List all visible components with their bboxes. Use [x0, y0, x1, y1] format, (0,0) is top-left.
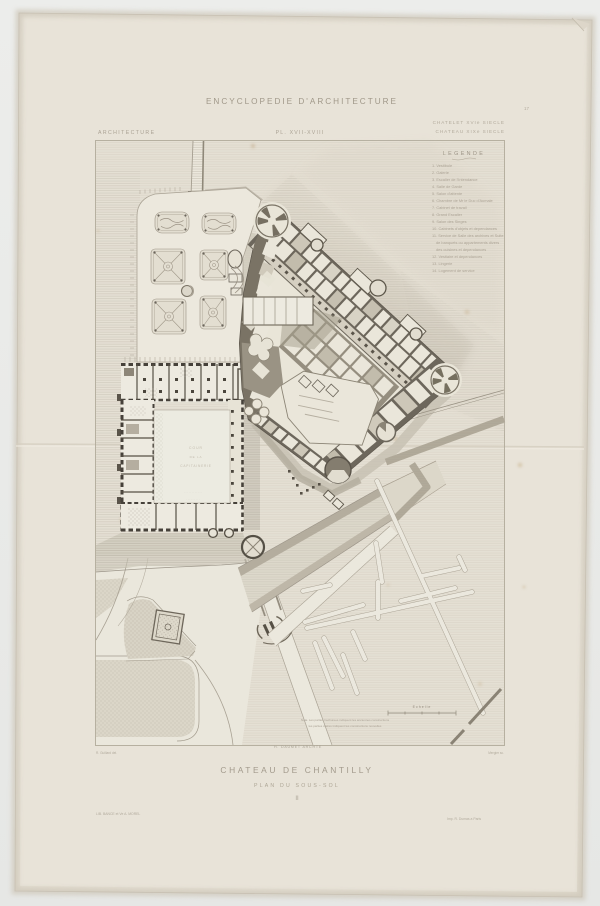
svg-text:17: 17 [524, 106, 530, 111]
svg-text:Mergier sc.: Mergier sc. [488, 751, 504, 755]
svg-text:II: II [295, 796, 299, 802]
svg-text:CHATEAU XIXe SIECLE: CHATEAU XIXe SIECLE [436, 129, 505, 134]
svg-text:Nota. Les parties hachurees in: Nota. Les parties hachurees indiquent le… [301, 718, 390, 722]
svg-text:Echelle: Echelle [413, 705, 432, 709]
svg-text:DE LA: DE LA [190, 455, 203, 459]
svg-text:PL. XVII-XVIII: PL. XVII-XVIII [276, 130, 325, 136]
svg-text:R. Guillard del.: R. Guillard del. [96, 751, 117, 755]
svg-text:CHATELET XVIe SIECLE: CHATELET XVIe SIECLE [433, 120, 505, 125]
svg-text:ARCHITECTURE: ARCHITECTURE [98, 130, 155, 136]
svg-text:LIB. BANCE et Ve A. MOREL: LIB. BANCE et Ve A. MOREL [96, 812, 140, 816]
svg-text:. . . . . . . . . . . .: . . . . . . . . . . . . [184, 490, 202, 494]
svg-text:CHATEAU DE CHANTILLY: CHATEAU DE CHANTILLY [220, 765, 373, 775]
svg-text:ENCYCLOPEDIE D'ARCHITECTURE: ENCYCLOPEDIE D'ARCHITECTURE [206, 97, 398, 106]
svg-text:LEGENDE: LEGENDE [443, 151, 486, 157]
svg-text:. . . . . . . . .: . . . . . . . . . [186, 497, 199, 501]
svg-text:PLAN DU SOUS-SOL: PLAN DU SOUS-SOL [254, 783, 340, 789]
svg-text:COUR: COUR [189, 446, 203, 450]
svg-text:Imp. R. Dumas a Paris: Imp. R. Dumas a Paris [447, 817, 481, 821]
svg-text:H. DAUMET ARCHTE: H. DAUMET ARCHTE [274, 745, 322, 749]
svg-text:CAPITAINERIE: CAPITAINERIE [180, 464, 212, 468]
svg-text:les parties claires indiquent: les parties claires indiquent les constr… [309, 724, 382, 728]
